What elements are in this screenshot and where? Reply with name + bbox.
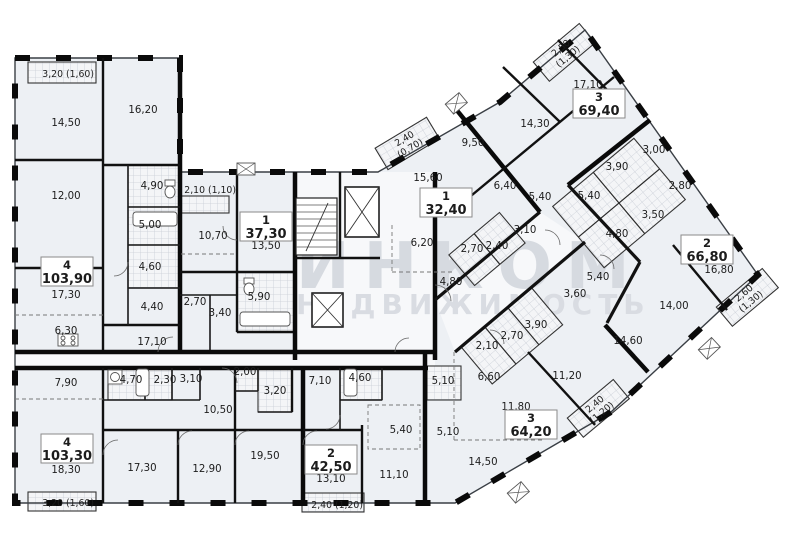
apartment-label: 2 66,80 <box>681 235 733 265</box>
vent-shaft-icon <box>507 482 529 504</box>
room-area-label: 14,50 <box>468 457 497 468</box>
apartment-label: 2 42,50 <box>305 445 357 475</box>
room-area-label: 3,50 <box>642 210 665 221</box>
svg-text:(1,20): (1,20) <box>335 500 363 511</box>
room-area-label: 5,40 <box>529 192 552 203</box>
room-area-label: 3,40 <box>209 308 232 319</box>
room-area-label: 5,40 <box>587 272 610 283</box>
room-area-label: 18,30 <box>51 465 80 476</box>
apartment-label: 4 103,90 <box>41 257 93 287</box>
svg-text:37,30: 37,30 <box>245 227 286 242</box>
room-area-label: 16,20 <box>128 105 157 116</box>
room-area-label: 11,10 <box>379 470 408 481</box>
room-area-label: 15,60 <box>413 173 442 184</box>
room-area-label: 4,60 <box>139 262 162 273</box>
svg-text:1: 1 <box>442 189 450 203</box>
room-area-label: 3,10 <box>514 225 537 236</box>
room-area-label: 17,30 <box>51 290 80 301</box>
floor-plan-page: ИНКОМ НЕДВИЖИМОСТЬ <box>0 0 800 545</box>
room-area-label: 13,10 <box>316 474 345 485</box>
room-area-label: 12,00 <box>51 191 80 202</box>
room-area-label: 2,30 <box>154 375 177 386</box>
svg-text:4: 4 <box>63 435 71 449</box>
room-area-label: 4,80 <box>606 229 629 240</box>
apartment-label: 1 32,40 <box>420 188 472 218</box>
room-area-label: 14,00 <box>659 301 688 312</box>
svg-text:3,20: 3,20 <box>42 69 63 80</box>
room-area-label: 3,90 <box>525 320 548 331</box>
room-area-label: 2,70 <box>184 297 207 308</box>
room-area-label: 4,70 <box>120 375 143 386</box>
room-area-label: 9,50 <box>462 138 485 149</box>
room-area-label: 7,10 <box>309 376 332 387</box>
room-area-label: 4,90 <box>141 181 164 192</box>
room-area-label: 5,40 <box>390 425 413 436</box>
room-area-label: 3,20 <box>264 386 287 397</box>
apartment-label: 3 64,20 <box>505 410 557 440</box>
room-area-label: 17,30 <box>127 463 156 474</box>
vent-shaft-icon <box>445 93 467 115</box>
svg-text:42,50: 42,50 <box>310 460 351 475</box>
svg-text:32,40: 32,40 <box>425 203 466 218</box>
room-area-label: 7,90 <box>55 378 78 389</box>
room-area-label: 6,30 <box>55 326 78 337</box>
room-area-label: 5,90 <box>248 292 271 303</box>
room-area-label: 11,20 <box>552 371 581 382</box>
room-area-label: 19,50 <box>250 451 279 462</box>
room-area-label: 17,10 <box>137 337 166 348</box>
svg-text:3: 3 <box>527 411 535 425</box>
stairs-icon <box>296 198 337 255</box>
room-area-label: 14,60 <box>613 336 642 347</box>
room-area-label: 4,60 <box>349 373 372 384</box>
room-area-label: 6,60 <box>478 372 501 383</box>
room-area-label: 10,50 <box>203 405 232 416</box>
room-area-label: 2,10 <box>476 341 499 352</box>
room-area-label: 3,60 <box>564 289 587 300</box>
svg-text:103,90: 103,90 <box>42 272 92 287</box>
apartment-label: 4 103,30 <box>41 434 93 464</box>
vent-shaft-icon <box>237 163 255 175</box>
elevator-icon <box>312 293 343 327</box>
vent-shaft-icon <box>698 337 720 359</box>
room-area-label: 5,10 <box>432 376 455 387</box>
room-area-label: 4,40 <box>141 302 164 313</box>
balcony-label: 2,40 (1,20) <box>311 500 363 511</box>
svg-text:3,20: 3,20 <box>42 498 63 509</box>
room-area-label: 2,00 <box>234 367 257 378</box>
svg-text:64,20: 64,20 <box>510 425 551 440</box>
apartment-label: 1 37,30 <box>240 212 292 242</box>
room-area-label: 2,80 <box>669 181 692 192</box>
balcony-label: 3,20 (1,60) <box>42 69 94 80</box>
room-area-label: 3,00 <box>643 145 666 156</box>
svg-text:2: 2 <box>327 446 335 460</box>
room-area-label: 2,40 <box>486 241 509 252</box>
svg-text:66,80: 66,80 <box>686 250 727 265</box>
room-area-label: 13,50 <box>251 241 280 252</box>
svg-text:1: 1 <box>262 213 270 227</box>
svg-text:2,40: 2,40 <box>311 500 332 511</box>
balcony-label: 2,10 (1,10) <box>184 185 236 196</box>
elevator-icon <box>345 187 379 237</box>
room-area-label: 6,40 <box>494 181 517 192</box>
room-area-label: 16,80 <box>704 265 733 276</box>
balcony-label: 3,20 (1,60) <box>42 498 94 509</box>
svg-text:2,10: 2,10 <box>184 185 205 196</box>
room-area-label: 2,70 <box>461 244 484 255</box>
room-area-label: 10,70 <box>198 231 227 242</box>
svg-text:(1,60): (1,60) <box>66 498 94 509</box>
room-area-label: 2,70 <box>501 331 524 342</box>
room-area-label: 14,50 <box>51 118 80 129</box>
room-area-label: 6,20 <box>411 238 434 249</box>
svg-text:(1,10): (1,10) <box>208 185 236 196</box>
room-area-label: 14,30 <box>520 119 549 130</box>
room-area-label: 12,90 <box>192 464 221 475</box>
svg-text:3: 3 <box>595 90 603 104</box>
svg-text:4: 4 <box>63 258 71 272</box>
svg-text:103,30: 103,30 <box>42 449 92 464</box>
svg-text:69,40: 69,40 <box>578 104 619 119</box>
watermark-tagline: НЕДВИЖИМОСТЬ <box>296 288 651 321</box>
svg-text:(1,60): (1,60) <box>66 69 94 80</box>
room-area-label: 5,00 <box>139 220 162 231</box>
apartment-label: 3 69,40 <box>573 89 625 119</box>
room-area-label: 3,10 <box>180 374 203 385</box>
room-area-label: 4,80 <box>440 277 463 288</box>
room-area-label: 5,40 <box>578 191 601 202</box>
floor-plan-drawing: ИНКОМ НЕДВИЖИМОСТЬ <box>0 0 800 545</box>
svg-text:2: 2 <box>703 236 711 250</box>
room-area-label: 5,10 <box>437 427 460 438</box>
room-area-label: 3,90 <box>606 162 629 173</box>
